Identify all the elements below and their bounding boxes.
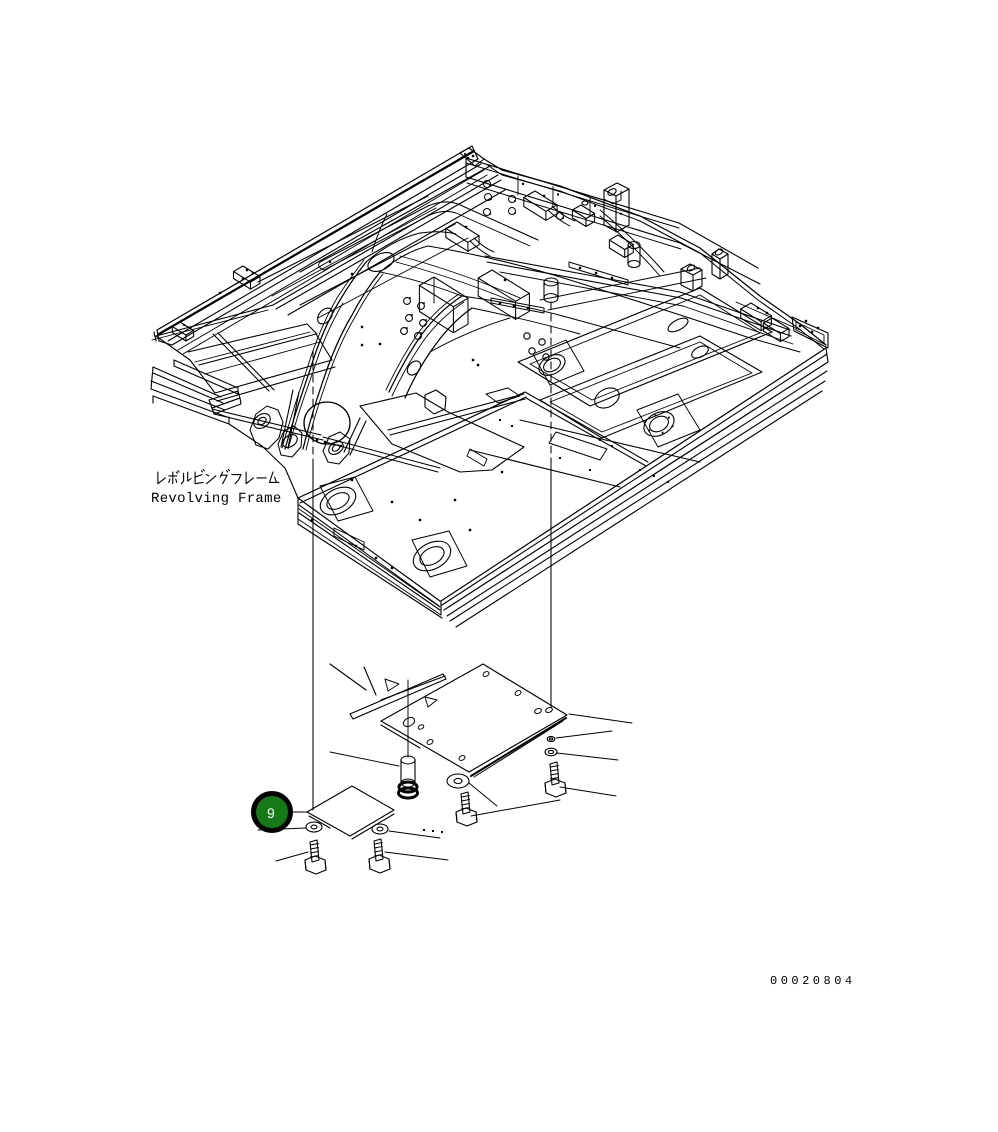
svg-text:00020804: 00020804: [770, 974, 856, 988]
svg-text:9: 9: [267, 805, 275, 821]
svg-text:Revolving Frame: Revolving Frame: [151, 491, 282, 507]
